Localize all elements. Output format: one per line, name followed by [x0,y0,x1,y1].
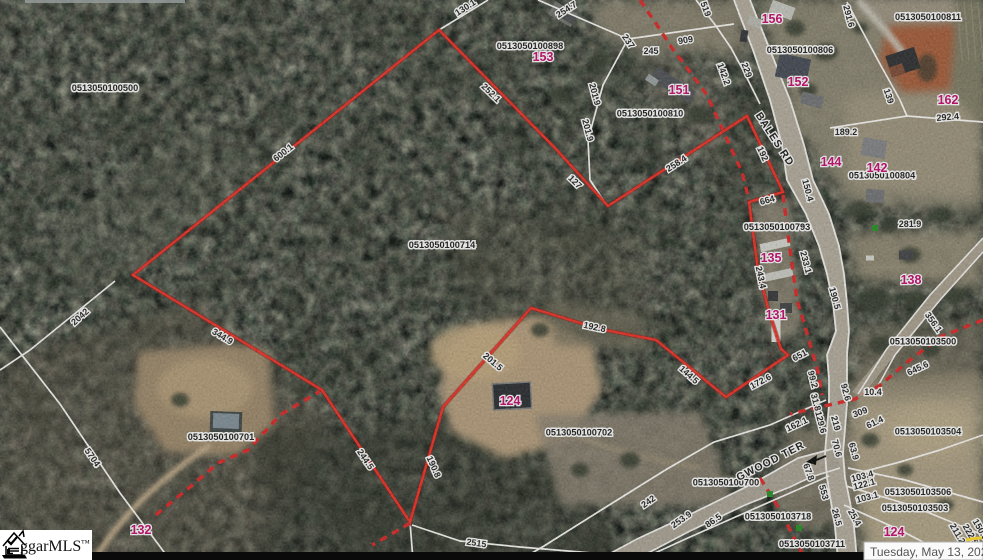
svg-text:ggarMLS: ggarMLS [20,538,81,555]
svg-text:™: ™ [81,538,90,548]
svg-text:Tuesday, May 13, 2025: Tuesday, May 13, 2025 [870,545,983,559]
